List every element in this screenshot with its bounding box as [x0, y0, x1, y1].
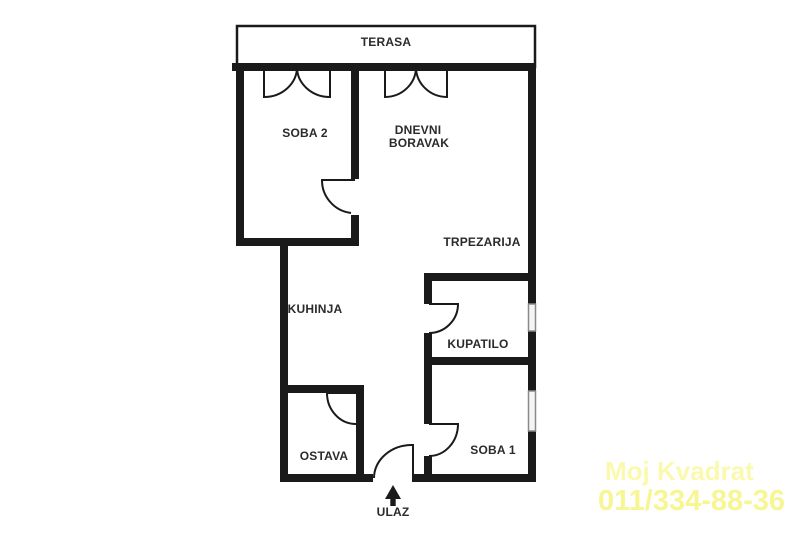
door-ostava — [327, 393, 356, 424]
window-kupatilo — [529, 304, 536, 331]
floor-plan: TERASA SOBA 2 DNEVNI BORAVAK TRPEZARIJA … — [0, 0, 800, 535]
label-kupatilo: KUPATILO — [447, 337, 508, 351]
door-balcony-soba2-left-leaf — [264, 67, 297, 97]
label-soba1: SOBA 1 — [470, 443, 516, 457]
label-ulaz: ULAZ — [377, 505, 410, 519]
watermark-line1: Moj Kvadrat — [605, 456, 754, 486]
door-balcony-dnevni-left-leaf — [385, 67, 416, 97]
label-dnevni-line1: DNEVNI — [395, 123, 442, 137]
door-soba1 — [429, 424, 458, 456]
label-dnevni-line2: BORAVAK — [389, 136, 449, 150]
label-ostava: OSTAVA — [300, 449, 349, 463]
entry-arrow-head — [385, 485, 401, 499]
floor-plan-drawing: TERASA SOBA 2 DNEVNI BORAVAK TRPEZARIJA … — [0, 0, 800, 535]
door-balcony-soba2-right-leaf — [297, 67, 330, 97]
door-entrance — [374, 445, 413, 478]
label-soba2: SOBA 2 — [282, 126, 328, 140]
label-kuhinja: KUHINJA — [288, 302, 343, 316]
label-trpezarija: TRPEZARIJA — [443, 235, 520, 249]
watermark: Moj Kvadrat 011/334-88-36 — [598, 456, 785, 517]
label-terasa: TERASA — [361, 35, 412, 49]
door-soba2 — [322, 180, 355, 213]
window-soba1 — [529, 391, 536, 431]
entry-arrow-icon — [385, 485, 401, 506]
door-balcony-dnevni-right-leaf — [416, 67, 447, 97]
watermark-line2: 011/334-88-36 — [598, 485, 785, 517]
walls — [232, 63, 536, 482]
door-kupatilo — [429, 304, 458, 333]
